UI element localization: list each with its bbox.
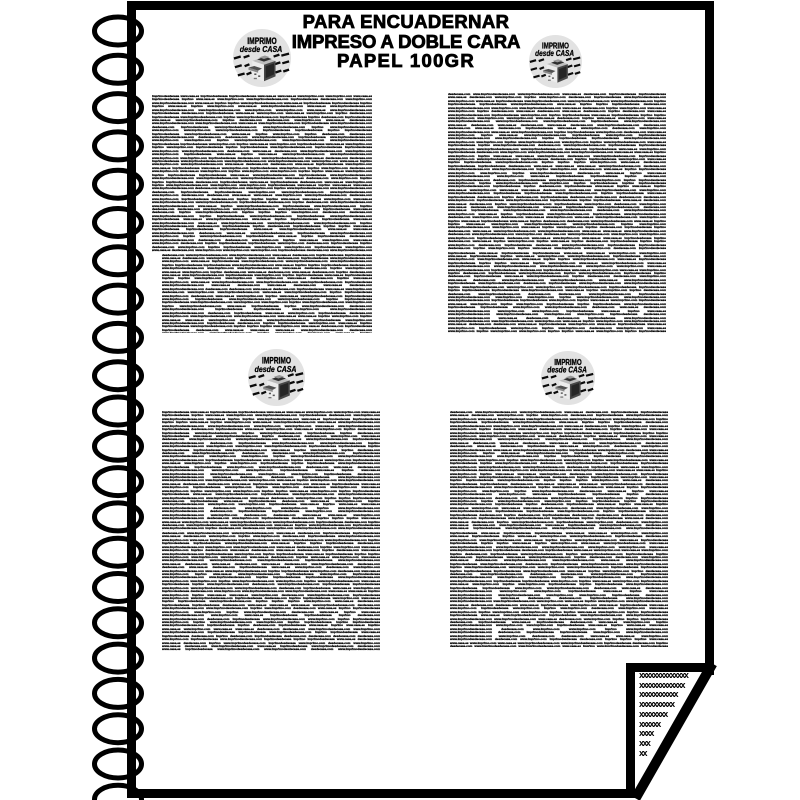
svg-text:desde CASA: desde CASA [254, 363, 296, 373]
svg-text:desde CASA: desde CASA [535, 49, 574, 58]
svg-text:desde CASA: desde CASA [240, 44, 283, 54]
svg-text:desde CASA: desde CASA [547, 366, 587, 375]
